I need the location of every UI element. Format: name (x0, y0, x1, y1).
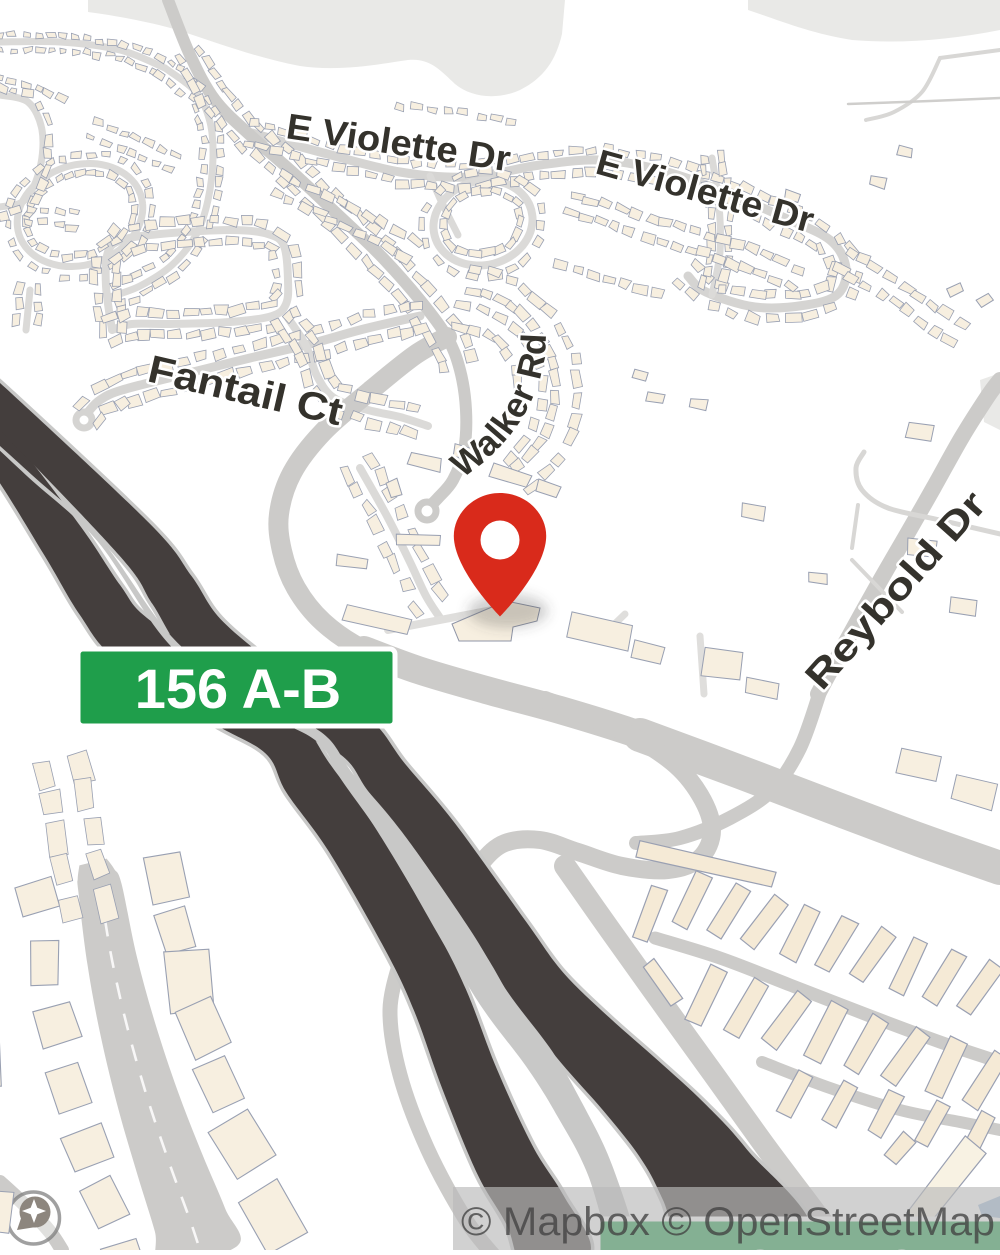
svg-text:© Mapbox © OpenStreetMap: © Mapbox © OpenStreetMap (461, 1200, 995, 1244)
svg-text:156 A-B: 156 A-B (135, 657, 341, 720)
